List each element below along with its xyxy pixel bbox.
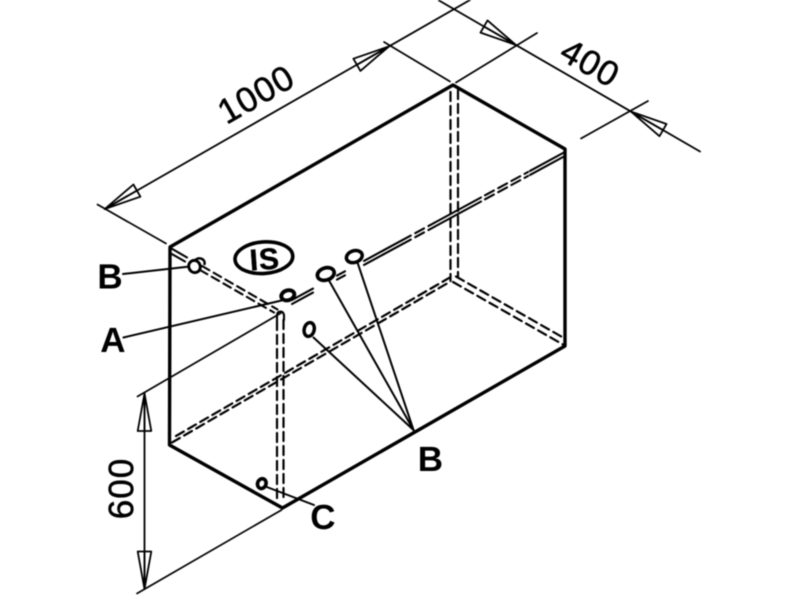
svg-text:400: 400	[554, 31, 627, 95]
svg-text:1000: 1000	[211, 57, 301, 132]
svg-text:IS: IS	[249, 242, 282, 277]
svg-text:B: B	[97, 257, 122, 296]
svg-text:B: B	[418, 440, 443, 479]
svg-text:A: A	[100, 321, 125, 360]
svg-text:600: 600	[102, 458, 141, 519]
svg-text:C: C	[310, 498, 335, 537]
